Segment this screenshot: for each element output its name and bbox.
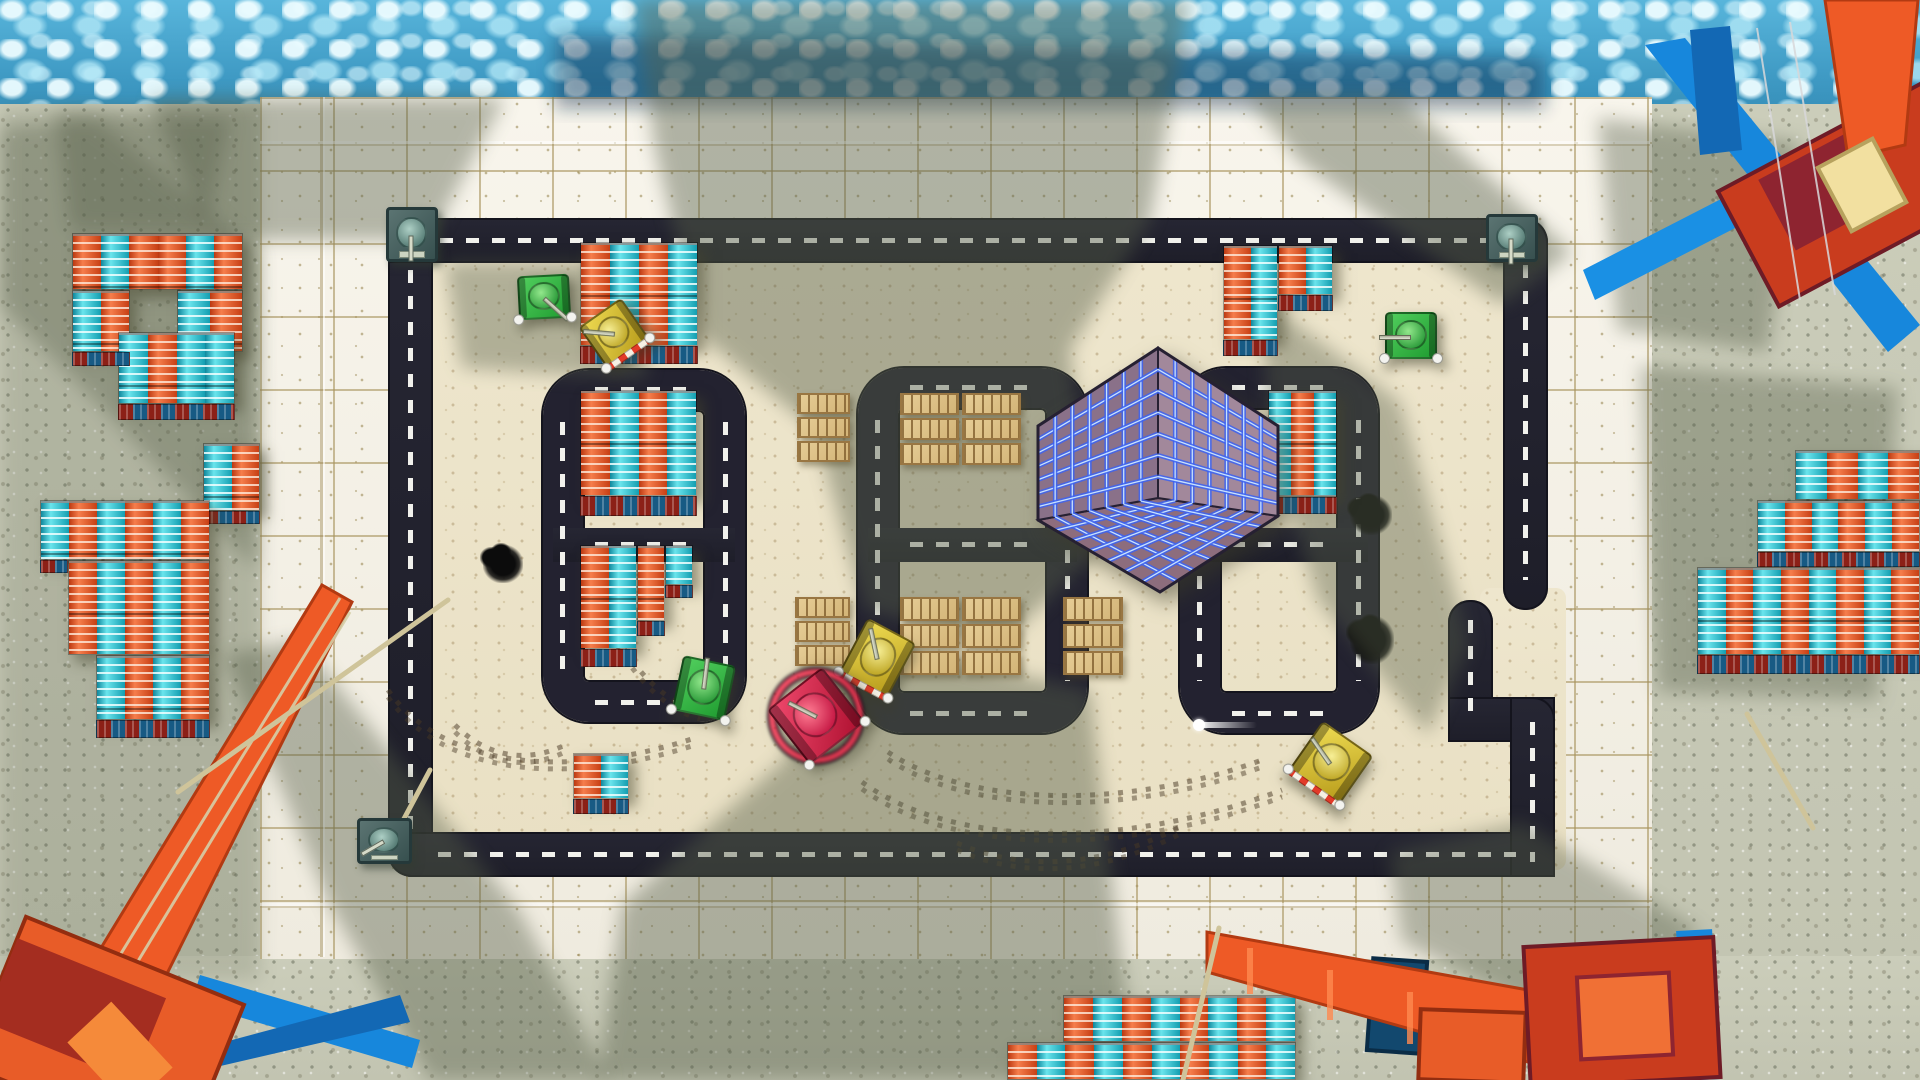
road-loop-left-midbar	[553, 528, 735, 562]
tank-red-1-tread	[768, 704, 818, 764]
tank-yellow-3-wheel	[1281, 761, 1296, 776]
container-column-orange	[129, 234, 157, 289]
crane-cabin	[1523, 937, 1720, 1080]
road-dash	[875, 420, 880, 681]
crane-cabin	[0, 917, 244, 1080]
pallets-loopB-bottom	[962, 651, 1021, 675]
stack-loopA-bottom-cell	[580, 545, 637, 649]
container-column-orange	[1892, 501, 1919, 551]
container-column-orange	[638, 546, 664, 620]
tank-green-2-hull	[672, 655, 736, 721]
road-loop-right-midbar	[1190, 528, 1368, 562]
road-dash	[1232, 385, 1326, 390]
container-column-orange	[148, 333, 177, 403]
pallets-right-of-loopB-bottom	[1063, 597, 1123, 621]
cluster-gravel-top-left-front	[118, 404, 235, 420]
corner-turret-top-left[interactable]	[386, 207, 438, 262]
pallets-loopB-bottom	[900, 624, 959, 648]
stack-loopA-bottom-cell-front	[580, 649, 637, 667]
stack-loopA-bottom-cell-front	[665, 585, 693, 598]
hole-splat	[1352, 625, 1376, 644]
stack-loopA-bottom-cell-front	[637, 621, 665, 636]
loose-pole	[178, 600, 448, 792]
tank-green-2[interactable]	[672, 655, 736, 721]
container-column-cyan	[1152, 1043, 1181, 1079]
tank-yellow-2-tread	[880, 640, 916, 697]
tank-yellow-2-barrel	[868, 627, 880, 659]
units-layer	[0, 0, 1920, 1080]
hole-splat	[485, 552, 507, 567]
pallets-loopB-bottom	[962, 624, 1021, 648]
road-outer-left	[388, 218, 433, 877]
tank-green-3[interactable]	[1385, 312, 1437, 359]
tank-yellow-2-stripe	[835, 669, 890, 703]
tank-yellow-3-tread	[1332, 751, 1373, 804]
container-column-orange	[125, 501, 153, 559]
cluster-sand-right	[1697, 567, 1920, 655]
container-column-cyan	[1306, 246, 1333, 294]
road-dash	[1232, 542, 1326, 547]
container-column-orange	[1180, 996, 1209, 1041]
road-dash	[1530, 722, 1535, 862]
tank-yellow-2-wheel	[831, 664, 846, 679]
blast-hole-right-lower	[1350, 616, 1394, 664]
cluster-bottom-center	[1063, 995, 1296, 1042]
container-column-cyan	[1314, 391, 1336, 496]
tank-green-3-turret	[1395, 320, 1427, 350]
container-column-orange	[1726, 568, 1754, 654]
road-loop-right	[1180, 368, 1378, 733]
container-column-cyan	[41, 501, 69, 559]
loose-pole	[1183, 928, 1219, 1080]
road-loop-middle	[858, 368, 1087, 733]
road-loop-left	[543, 370, 745, 722]
pallets-left-of-loopB-top	[797, 417, 850, 438]
tank-yellow-1-tread	[615, 298, 649, 342]
cluster-gravel-top-left	[177, 290, 243, 352]
corner-turret-bottom-left-dome	[368, 827, 400, 853]
crane-leg	[1690, 26, 1742, 155]
stack-loopA-bottom-cell	[665, 545, 693, 585]
container-column-cyan	[1812, 501, 1839, 551]
shadow-layer	[0, 0, 1920, 1080]
container-column-cyan	[1269, 391, 1291, 496]
container-column-cyan	[610, 391, 639, 495]
game-viewport[interactable]	[0, 0, 1920, 1080]
container-column-orange	[1237, 996, 1266, 1041]
corner-turret-bottom-left-barrel	[360, 840, 385, 857]
tank-red-1-tread	[814, 668, 864, 728]
pallets-left-of-loopB-top	[797, 441, 850, 462]
stack-below-loopA-front	[573, 799, 629, 814]
cluster-sand-right	[1757, 500, 1920, 552]
pallets-loopB-bottom	[900, 597, 959, 621]
tank-red-1-barrel	[787, 700, 818, 719]
pier-seam	[320, 97, 323, 957]
cluster-gravel-left-lower	[68, 560, 210, 655]
container-column-orange	[214, 234, 242, 289]
pier-seam	[260, 141, 1650, 144]
corner-turret-top-left-dome	[396, 217, 426, 249]
container-column-orange	[1064, 996, 1093, 1041]
container-column-cyan	[610, 243, 639, 345]
container-column-cyan	[73, 291, 101, 351]
tank-yellow-2-tread	[839, 619, 875, 676]
crane-container	[1418, 1009, 1525, 1080]
corner-turret-top-left-pad	[399, 251, 425, 258]
container-column-cyan	[1266, 996, 1295, 1041]
loose-pole	[1747, 714, 1813, 828]
pallets-loopB-top	[962, 393, 1021, 415]
crane-cabin-roof	[1758, 124, 1902, 251]
tank-green-3-barrel	[1379, 335, 1411, 340]
corner-turret-top-right-pad	[1499, 252, 1525, 258]
crane-leg	[1645, 38, 1920, 352]
container-column-orange	[574, 754, 601, 798]
container-column-cyan	[178, 291, 210, 351]
tank-green-1-barrel	[542, 297, 569, 322]
crane-boom	[1825, 0, 1918, 158]
road-dash	[910, 711, 1035, 716]
fx-layer	[0, 0, 1920, 1080]
shell-head	[1193, 719, 1205, 731]
container-column-cyan	[1037, 1043, 1066, 1079]
stack-loopA-top-cell-front	[580, 496, 697, 516]
hole-splat	[1352, 502, 1375, 518]
container-column-cyan	[97, 656, 125, 719]
tank-yellow-2[interactable]	[839, 618, 917, 699]
tank-green-3-hull	[1385, 312, 1437, 359]
road-dash	[408, 270, 413, 830]
road-dash	[560, 422, 565, 670]
container-column-orange	[1279, 246, 1306, 294]
container-column-orange	[181, 656, 209, 719]
glow-cube	[1038, 348, 1278, 592]
pallets-loopB-top	[962, 443, 1021, 465]
tank-yellow-1-tread	[579, 323, 613, 367]
container-column-orange	[639, 391, 668, 495]
cluster-sand-right-front	[1757, 552, 1920, 567]
cluster-gravel-left-lower-front	[96, 720, 210, 738]
container-column-orange	[181, 501, 209, 559]
container-column-cyan	[668, 243, 697, 345]
marks-layer	[0, 0, 1920, 1080]
stack-loopC-top-cell	[1268, 390, 1337, 497]
road-dash	[438, 852, 1516, 857]
container-column-orange	[1888, 451, 1919, 499]
tank-green-2-wheel	[719, 714, 732, 727]
road-dash	[1232, 711, 1326, 716]
container-column-orange	[69, 561, 97, 654]
container-column-cyan	[205, 333, 234, 403]
tank-yellow-1-barrel	[583, 329, 615, 337]
container-column-cyan	[1865, 501, 1892, 551]
tank-yellow-2-hull	[839, 618, 917, 699]
hole-splat	[1346, 619, 1372, 645]
water-surface	[0, 0, 1920, 110]
container-column-cyan	[1151, 996, 1180, 1041]
container-column-orange	[1838, 501, 1865, 551]
tank-green-2-barrel	[701, 657, 710, 689]
container-column-cyan	[153, 656, 181, 719]
pallets-left-of-loopB-bottom	[795, 621, 850, 642]
container-column-cyan	[609, 546, 637, 648]
loose-pole	[398, 770, 430, 830]
cluster-gravel-top-left	[118, 332, 235, 404]
tank-yellow-1-wheel	[642, 330, 657, 345]
crane-boom	[62, 585, 352, 1052]
road-dash	[723, 422, 728, 670]
tank-green-1[interactable]	[517, 274, 571, 321]
cluster-gravel-top-left	[72, 290, 130, 352]
tank-green-2-tread	[716, 666, 736, 720]
container-column-cyan	[1753, 568, 1781, 654]
tank-yellow-3-turret	[1305, 735, 1359, 788]
tank-green-1-tread	[561, 275, 572, 318]
stack-loopC-top-cell-front	[1268, 497, 1337, 514]
container-column-cyan	[1858, 451, 1889, 499]
container-column-orange	[581, 546, 609, 648]
container-column-orange	[1891, 568, 1919, 654]
tank-green-1-turret	[527, 281, 561, 311]
pallets-right-of-loopB-bottom	[1063, 624, 1123, 648]
road-dash	[595, 542, 693, 547]
cluster-gravel-left-lower	[96, 655, 210, 720]
tank-red-1-damage-ring	[750, 650, 882, 782]
stack-arena-top-left	[580, 242, 698, 346]
container-column-cyan	[1209, 1043, 1238, 1079]
tank-green-1-wheel	[513, 314, 525, 326]
container-column-orange	[1065, 1043, 1094, 1079]
tank-yellow-2-wheel	[880, 691, 895, 706]
pallets-loopB-top	[900, 418, 959, 440]
tank-red-1-turret	[784, 684, 846, 746]
tread-marks	[0, 0, 1920, 1080]
container-column-orange	[581, 391, 610, 495]
road-chicane-upper	[1448, 600, 1493, 742]
container-column-cyan	[204, 444, 232, 510]
road-dash	[1523, 265, 1528, 580]
hole-splat	[1347, 497, 1372, 519]
container-column-orange	[1827, 451, 1858, 499]
tank-green-3-wheel	[1432, 353, 1443, 364]
props-layer	[0, 0, 1920, 1080]
container-column-orange	[1008, 1043, 1037, 1079]
arena-sand	[400, 230, 1546, 867]
corner-turret-bottom-left[interactable]	[357, 818, 412, 864]
container-column-orange	[1122, 996, 1151, 1041]
tank-green-3-wheel	[1379, 353, 1390, 364]
tank-green-1-wheel	[566, 311, 578, 323]
container-column-orange	[210, 291, 242, 351]
container-column-orange	[232, 444, 260, 510]
container-column-cyan	[1266, 1043, 1295, 1079]
pallets-loopB-top	[900, 393, 959, 415]
container-column-orange	[125, 561, 153, 654]
container-column-cyan	[101, 234, 129, 289]
cube-and-cranes	[0, 0, 1920, 1080]
corner-turret-top-right[interactable]	[1486, 214, 1538, 262]
container-column-cyan	[177, 333, 206, 403]
crane-leg	[1676, 929, 1720, 1080]
container-column-cyan	[97, 501, 125, 559]
tank-green-1-tread	[517, 277, 528, 320]
container-column-cyan	[1251, 246, 1278, 339]
pallets-loopB-bottom	[900, 651, 959, 675]
road-chicane-lower	[1510, 697, 1555, 877]
container-column-cyan	[97, 561, 125, 654]
cluster-gravel-left-lower-front	[40, 560, 68, 573]
stack-pier-edge-left	[203, 443, 260, 511]
container-column-cyan	[1809, 568, 1837, 654]
hole-splat	[491, 543, 511, 560]
gravel-bottom	[0, 956, 1920, 1080]
container-column-cyan	[1698, 568, 1726, 654]
container-column-cyan	[1094, 1043, 1123, 1079]
stack-pier-edge-left-front	[203, 511, 260, 524]
road-layer	[0, 0, 1920, 1080]
container-column-orange	[639, 243, 668, 345]
pallets-loopB-top	[962, 418, 1021, 440]
road-outer-top	[388, 218, 1538, 263]
blast-hole-right-upper	[1350, 495, 1392, 535]
road-dash	[440, 238, 1490, 243]
tank-yellow-3-stripe	[1285, 766, 1343, 809]
container-column-cyan	[119, 333, 148, 403]
road-dash	[595, 700, 693, 705]
blast-hole-left	[483, 545, 523, 583]
pallets-left-of-loopB-bottom	[795, 597, 850, 618]
container-column-cyan	[153, 561, 181, 654]
tank-yellow-1-turret	[591, 310, 636, 355]
ground-layer	[0, 0, 1920, 1080]
pallets-loopB-top	[900, 443, 959, 465]
container-column-cyan	[666, 546, 692, 584]
container-column-orange	[69, 501, 97, 559]
stack-arena-top-right	[1278, 245, 1333, 295]
tank-red-1-wheel	[857, 714, 872, 729]
tank-green-2-turret	[684, 666, 724, 708]
road-dash	[1065, 420, 1070, 681]
pallets-left-of-loopB-top	[797, 393, 850, 414]
crane-leg	[150, 995, 410, 1080]
road-dash	[1356, 420, 1361, 681]
pier-seam	[260, 903, 1650, 906]
road-chicane-horiz	[1448, 697, 1555, 742]
gravel-left	[0, 104, 262, 1080]
pallets-loopB-bottom	[962, 597, 1021, 621]
tank-yellow-1-wheel	[599, 361, 614, 376]
arena-sand-chicane-patch	[1480, 588, 1566, 870]
tank-red-1-hull	[767, 667, 865, 765]
road-outer-right-upper	[1503, 218, 1548, 610]
crane-cabin-roof	[0, 938, 166, 1080]
crane-counterweight	[1367, 958, 1427, 1054]
tank-green-2-wheel	[665, 703, 678, 716]
cluster-sand-right-front	[1697, 655, 1920, 674]
container-column-orange	[581, 243, 610, 345]
tank-green-3-tread	[1385, 313, 1393, 358]
pallets-left-of-loopB-bottom	[795, 645, 850, 666]
container-column-cyan	[1796, 451, 1827, 499]
cast-shadows	[0, 0, 1920, 1080]
tank-yellow-3-wheel	[1332, 798, 1347, 813]
tank-yellow-3-hull	[1288, 721, 1373, 806]
tank-red-1[interactable]	[767, 667, 865, 765]
tank-yellow-1-stripe	[604, 335, 653, 372]
tank-green-3-tread	[1429, 313, 1437, 358]
road-dash	[1197, 420, 1202, 681]
cluster-gravel-top-left	[72, 233, 243, 290]
crane-panel	[1818, 139, 1907, 232]
container-column-orange	[1123, 1043, 1152, 1079]
shell-tracer	[1197, 722, 1257, 728]
stack-arena-top-right-front	[1278, 295, 1333, 311]
container-column-cyan	[153, 501, 181, 559]
cluster-sand-right	[1795, 450, 1920, 500]
tank-yellow-3[interactable]	[1288, 721, 1373, 806]
stack-below-loopA	[573, 753, 629, 799]
container-column-cyan	[1093, 996, 1122, 1041]
hole-splat	[1359, 614, 1381, 636]
cluster-gravel-top-left-front	[72, 352, 130, 366]
crane-leg	[1583, 106, 1920, 300]
container-column-cyan	[186, 234, 214, 289]
tank-yellow-1-hull	[578, 298, 649, 369]
stack-arena-top-right	[1223, 245, 1278, 340]
container-column-orange	[125, 656, 153, 719]
container-column-orange	[181, 561, 209, 654]
container-column-orange	[1180, 1043, 1209, 1079]
tank-yellow-1[interactable]	[578, 298, 649, 369]
pallets-right-of-loopB-bottom	[1063, 651, 1123, 675]
road-dash	[595, 387, 693, 392]
hole-splat	[1358, 493, 1379, 511]
container-column-orange	[1785, 501, 1812, 551]
container-column-orange	[1836, 568, 1864, 654]
road-dash	[910, 542, 1035, 547]
cluster-gravel-left-lower	[40, 500, 210, 560]
tank-yellow-3-barrel	[1310, 736, 1332, 765]
road-outer-bottom	[388, 832, 1555, 877]
container-column-cyan	[1758, 501, 1785, 551]
corner-turret-top-left-barrel	[409, 235, 414, 261]
container-column-cyan	[601, 754, 628, 798]
container-column-cyan	[1864, 568, 1892, 654]
road-dash	[910, 385, 1035, 390]
cluster-bottom-center	[1007, 1042, 1296, 1080]
stack-arena-top-left-front	[580, 346, 698, 364]
crane-chevron	[67, 1002, 172, 1080]
container-column-orange	[101, 291, 129, 351]
tank-yellow-2-turret	[854, 631, 903, 682]
tank-green-1-hull	[517, 274, 571, 321]
tank-red-1-wheel	[802, 757, 817, 772]
container-column-cyan	[667, 391, 696, 495]
container-column-orange	[1291, 391, 1313, 496]
container-column-orange	[1238, 1043, 1267, 1079]
crane-boom	[1207, 932, 1528, 1062]
crane-panel	[1577, 973, 1673, 1060]
road-loop-middle-midbar	[868, 528, 1077, 562]
pier-tiles	[260, 97, 1652, 959]
container-column-orange	[158, 234, 186, 289]
tank-yellow-3-tread	[1289, 722, 1330, 775]
crane-leg	[1340, 978, 1488, 1080]
container-column-orange	[73, 234, 101, 289]
container-column-orange	[1781, 568, 1809, 654]
road-dash	[1468, 620, 1473, 720]
